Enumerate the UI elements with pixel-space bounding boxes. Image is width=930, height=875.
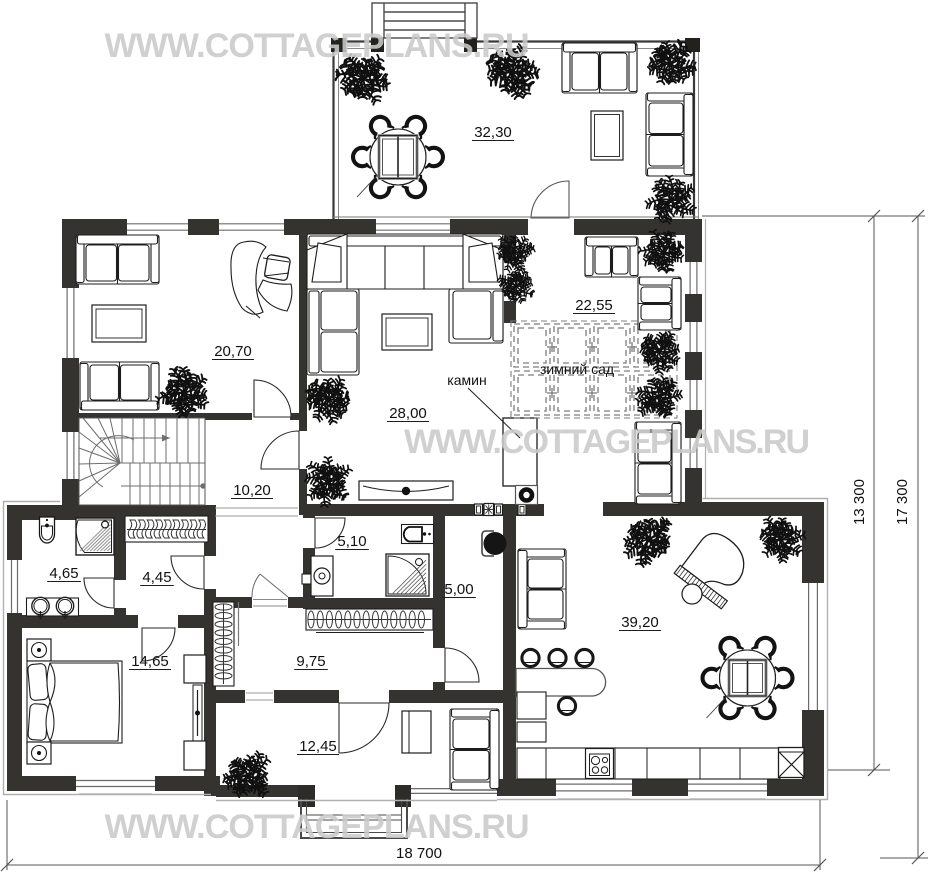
svg-text:14,65: 14,65 [131, 653, 169, 670]
svg-text:зимний сад: зимний сад [540, 361, 614, 377]
svg-text:4,45: 4,45 [142, 569, 171, 586]
svg-text:WWW.COTTAGEPLANS.RU: WWW.COTTAGEPLANS.RU [105, 808, 530, 846]
svg-text:12,45: 12,45 [299, 738, 337, 755]
svg-text:камин: камин [447, 372, 486, 388]
svg-text:9,75: 9,75 [296, 653, 325, 670]
svg-text:13 300: 13 300 [851, 479, 868, 525]
svg-text:18 700: 18 700 [396, 845, 442, 862]
svg-text:28,00: 28,00 [389, 405, 427, 422]
svg-text:10,20: 10,20 [233, 482, 271, 499]
svg-text:WWW.COTTAGEPLANS.RU: WWW.COTTAGEPLANS.RU [404, 423, 810, 461]
svg-text:17 300: 17 300 [894, 479, 911, 525]
svg-text:39,20: 39,20 [621, 614, 659, 631]
svg-text:32,30: 32,30 [474, 124, 512, 141]
svg-text:5,10: 5,10 [337, 533, 366, 550]
svg-text:20,70: 20,70 [214, 343, 252, 360]
svg-text:4,65: 4,65 [49, 565, 78, 582]
svg-text:5,00: 5,00 [444, 581, 473, 598]
svg-text:22,55: 22,55 [575, 297, 613, 314]
svg-text:WWW.COTTAGEPLANS.RU: WWW.COTTAGEPLANS.RU [105, 27, 530, 65]
